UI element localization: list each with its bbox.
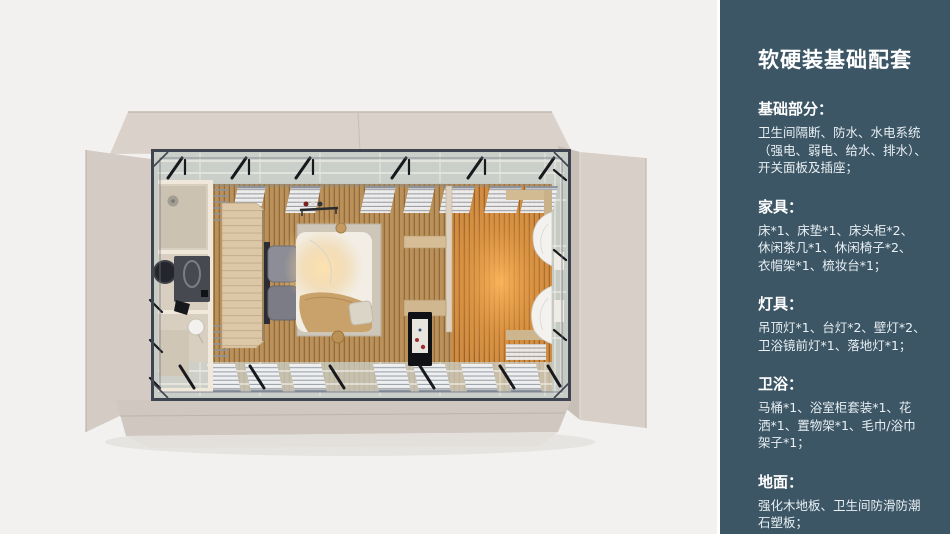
panel-title: 软硬装基础配套 <box>726 44 944 74</box>
wall-flap-left <box>86 150 158 432</box>
wall-flap-right <box>558 146 646 428</box>
section-bathroom-line: 马桶*1、浴室柜套装*1、花 <box>758 399 934 417</box>
pouf-bottom <box>332 331 344 343</box>
slide: 软硬装基础配套 基础部分： 卫生间隔断、防水、水电系统 （强电、弱电、给水、排水… <box>0 0 950 534</box>
wardrobe <box>222 203 264 348</box>
section-furniture-title: 家具： <box>758 196 934 217</box>
floorplan-render <box>0 0 720 534</box>
section-basics-line: （强电、弱电、给水、排水）、 <box>758 142 934 160</box>
section-flooring-line: 强化木地板、卫生间防滑防潮 <box>758 497 934 515</box>
section-flooring: 地面： 强化木地板、卫生间防滑防潮 石塑板； <box>758 471 934 532</box>
panel-sections: 基础部分： 卫生间隔断、防水、水电系统 （强电、弱电、给水、排水）、 开关面板及… <box>720 74 950 532</box>
section-flooring-title: 地面： <box>758 471 934 492</box>
section-lighting: 灯具： 吊顶灯*1、台灯*2、壁灯*2、 卫浴镜前灯*1、落地灯*1； <box>758 293 934 354</box>
section-basics-line: 卫生间隔断、防水、水电系统 <box>758 124 934 142</box>
section-lighting-line: 卫浴镜前灯*1、落地灯*1； <box>758 337 934 355</box>
section-lighting-line: 吊顶灯*1、台灯*2、壁灯*2、 <box>758 319 934 337</box>
section-bathroom-line: 洒*1、置物架*1、毛巾/浴巾 <box>758 417 934 435</box>
floorplan-area <box>0 0 720 534</box>
black-cabinet <box>408 312 432 366</box>
info-panel: 软硬装基础配套 基础部分： 卫生间隔断、防水、水电系统 （强电、弱电、给水、排水… <box>720 0 950 534</box>
section-furniture-line: 床*1、床垫*1、床头柜*2、 <box>758 222 934 240</box>
section-basics-title: 基础部分： <box>758 98 934 119</box>
section-flooring-line: 石塑板； <box>758 514 934 532</box>
section-furniture-line: 休闲茶几*1、休闲椅子*2、 <box>758 239 934 257</box>
section-bathroom-line: 架子*1； <box>758 434 934 452</box>
section-basics-line: 开关面板及插座； <box>758 159 934 177</box>
wall-flap-bottom <box>116 398 572 448</box>
section-bathroom-title: 卫浴： <box>758 373 934 394</box>
pouf-top <box>336 223 346 233</box>
wall-flap-top <box>110 112 572 154</box>
section-bathroom: 卫浴： 马桶*1、浴室柜套装*1、花 洒*1、置物架*1、毛巾/浴巾 架子*1； <box>758 373 934 452</box>
cushion <box>349 301 374 326</box>
section-furniture-line: 衣帽架*1、梳妆台*1； <box>758 257 934 275</box>
section-lighting-title: 灯具： <box>758 293 934 314</box>
section-furniture: 家具： 床*1、床垫*1、床头柜*2、 休闲茶几*1、休闲椅子*2、 衣帽架*1… <box>758 196 934 275</box>
section-basics: 基础部分： 卫生间隔断、防水、水电系统 （强电、弱电、给水、排水）、 开关面板及… <box>758 98 934 177</box>
